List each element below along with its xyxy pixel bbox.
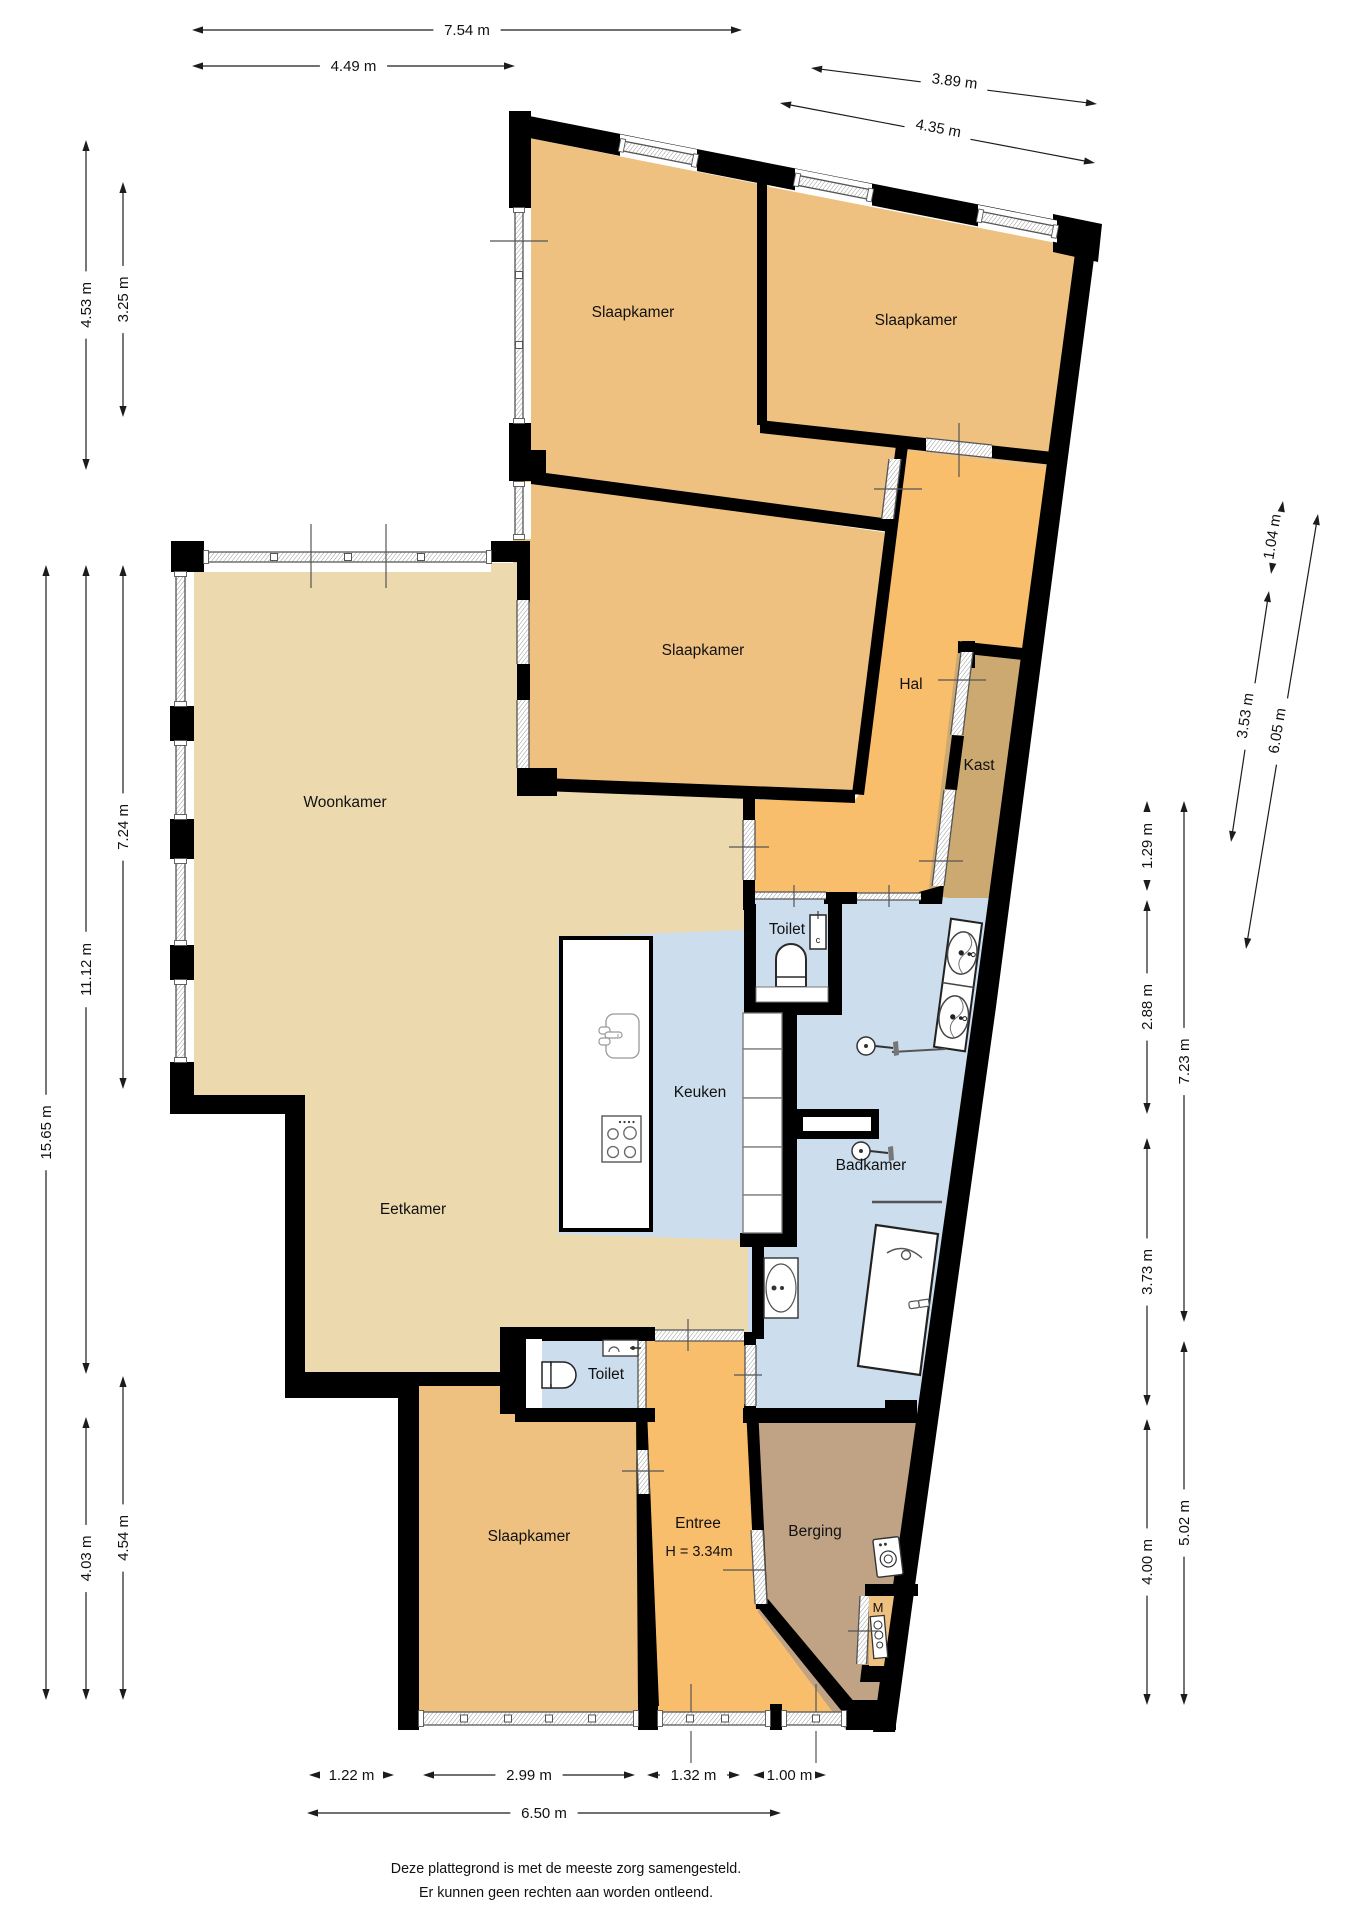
svg-text:Entree: Entree <box>675 1515 721 1532</box>
svg-text:c: c <box>816 935 821 945</box>
svg-text:7.54 m: 7.54 m <box>444 22 490 39</box>
svg-text:Slaapkamer: Slaapkamer <box>592 304 675 321</box>
svg-text:M: M <box>873 1600 884 1615</box>
svg-text:2.99 m: 2.99 m <box>506 1767 552 1784</box>
svg-text:4.03 m: 4.03 m <box>78 1536 95 1582</box>
svg-text:Eetkamer: Eetkamer <box>380 1201 446 1218</box>
svg-text:Slaapkamer: Slaapkamer <box>488 1528 571 1545</box>
svg-text:7.23 m: 7.23 m <box>1176 1039 1193 1085</box>
svg-text:Er kunnen geen rechten aan wor: Er kunnen geen rechten aan worden ontlee… <box>419 1885 713 1901</box>
svg-text:Slaapkamer: Slaapkamer <box>875 312 958 329</box>
svg-text:1.32 m: 1.32 m <box>671 1767 717 1784</box>
svg-text:1.22 m: 1.22 m <box>329 1767 375 1784</box>
svg-text:Deze plattegrond is met de mee: Deze plattegrond is met de meeste zorg s… <box>391 1861 741 1877</box>
svg-text:Hal: Hal <box>899 676 922 693</box>
svg-text:6.50 m: 6.50 m <box>521 1805 567 1822</box>
svg-text:Woonkamer: Woonkamer <box>303 794 386 811</box>
svg-text:4.00 m: 4.00 m <box>1139 1539 1156 1585</box>
svg-text:15.65 m: 15.65 m <box>38 1105 55 1159</box>
svg-text:11.12 m: 11.12 m <box>78 943 95 996</box>
svg-text:3.73 m: 3.73 m <box>1139 1249 1156 1295</box>
svg-text:H = 3.34m: H = 3.34m <box>665 1544 732 1560</box>
svg-text:1.00 m: 1.00 m <box>767 1767 813 1784</box>
svg-text:5.02 m: 5.02 m <box>1176 1500 1193 1546</box>
svg-text:Toilet: Toilet <box>769 921 806 938</box>
svg-text:7.24 m: 7.24 m <box>115 804 132 850</box>
svg-text:2.88 m: 2.88 m <box>1139 984 1156 1030</box>
svg-text:4.53 m: 4.53 m <box>78 282 95 328</box>
svg-text:Badkamer: Badkamer <box>836 1157 907 1174</box>
svg-text:Slaapkamer: Slaapkamer <box>662 642 745 659</box>
svg-text:4.54 m: 4.54 m <box>115 1515 132 1561</box>
svg-text:Berging: Berging <box>788 1523 841 1540</box>
svg-text:Toilet: Toilet <box>588 1366 625 1383</box>
svg-text:Keuken: Keuken <box>674 1084 727 1101</box>
svg-text:1.29 m: 1.29 m <box>1139 823 1156 869</box>
svg-text:4.49 m: 4.49 m <box>331 58 377 75</box>
svg-text:3.25 m: 3.25 m <box>115 277 132 323</box>
svg-text:Kast: Kast <box>963 757 995 774</box>
